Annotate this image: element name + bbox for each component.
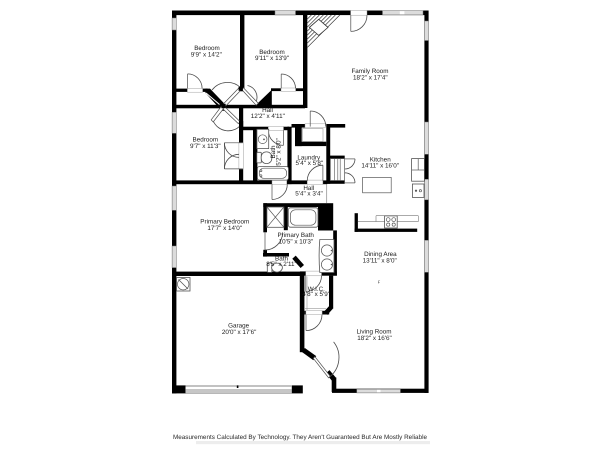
svg-text:20'0" x 17'6": 20'0" x 17'6" <box>222 329 257 336</box>
svg-text:18'2" x 17'4": 18'2" x 17'4" <box>353 74 388 81</box>
svg-text:13'11" x 8'0": 13'11" x 8'0" <box>363 258 397 265</box>
svg-text:5'2" x 8'0": 5'2" x 8'0" <box>276 138 283 166</box>
svg-text:14'11" x 16'0": 14'11" x 16'0" <box>361 163 399 170</box>
svg-text:12'2" x 4'11": 12'2" x 4'11" <box>251 113 285 120</box>
svg-text:4'8" x 5'9": 4'8" x 5'9" <box>302 291 330 298</box>
svg-text:17'7" x 14'0": 17'7" x 14'0" <box>207 225 242 232</box>
svg-text:10'5" x 10'3": 10'5" x 10'3" <box>279 239 314 246</box>
svg-text:5'4" x 5'8": 5'4" x 5'8" <box>296 160 324 167</box>
svg-text:18'2" x 16'6": 18'2" x 16'6" <box>357 335 392 342</box>
svg-text:9'7" x 11'3": 9'7" x 11'3" <box>190 143 221 150</box>
svg-text:8'5" x 2'11": 8'5" x 2'11" <box>266 261 297 268</box>
svg-text:Measurements Calculated By Tec: Measurements Calculated By Technology. T… <box>173 434 428 441</box>
svg-text:9'11" x 13'9": 9'11" x 13'9" <box>255 55 289 62</box>
svg-text:5'4" x 3'4": 5'4" x 3'4" <box>295 191 323 198</box>
svg-text:9'9" x 14'2": 9'9" x 14'2" <box>191 51 222 58</box>
